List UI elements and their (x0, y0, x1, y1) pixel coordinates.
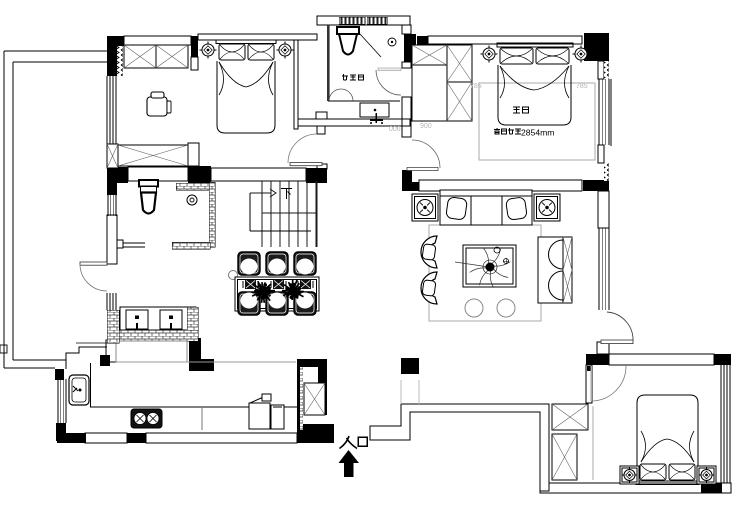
svg-text:785: 785 (576, 83, 588, 90)
svg-text:785: 785 (470, 83, 482, 90)
svg-text:006: 006 (389, 126, 401, 133)
svg-text:2854mm: 2854mm (521, 128, 554, 138)
svg-text:900: 900 (420, 123, 432, 130)
